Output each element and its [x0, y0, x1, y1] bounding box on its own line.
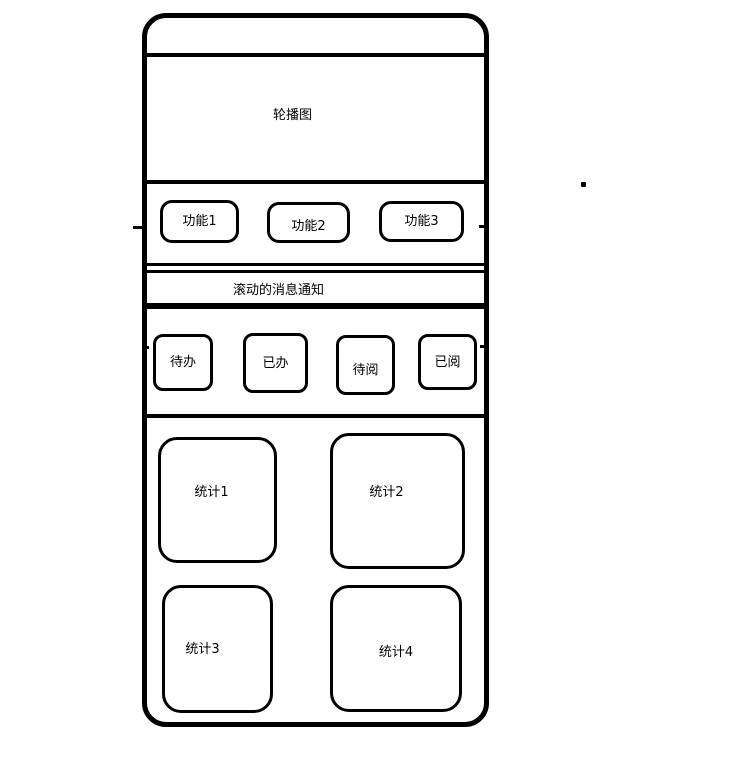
- stat-box-1[interactable]: 统计1: [158, 437, 277, 563]
- stat-box-3-label: 统计3: [185, 643, 219, 656]
- function-button-3-label: 功能3: [404, 215, 438, 228]
- notice-label: 滚动的消息通知: [233, 284, 324, 297]
- badge-todo[interactable]: 待办: [153, 334, 213, 391]
- badge-read[interactable]: 已阅: [418, 334, 477, 390]
- badge-todo-label: 待办: [170, 356, 196, 369]
- carousel-label: 轮播图: [273, 109, 312, 122]
- stat-box-4-label: 统计4: [379, 646, 413, 659]
- badge-done[interactable]: 已办: [243, 333, 308, 393]
- badge-to-read-label: 待阅: [352, 364, 378, 377]
- stat-box-2[interactable]: 统计2: [330, 433, 465, 569]
- stray-dot: [581, 182, 586, 187]
- function-button-1[interactable]: 功能1: [160, 200, 239, 243]
- function-button-3[interactable]: 功能3: [379, 201, 464, 242]
- stat-box-1-label: 统计1: [194, 486, 228, 499]
- connector-tick-right-functions: [479, 225, 486, 228]
- badge-done-label: 已办: [262, 357, 288, 370]
- stat-box-4[interactable]: 统计4: [330, 585, 462, 712]
- connector-tick-left-functions: [133, 226, 143, 229]
- function-button-2[interactable]: 功能2: [267, 202, 350, 243]
- badge-to-read[interactable]: 待阅: [336, 335, 395, 395]
- stat-box-2-label: 统计2: [369, 486, 403, 499]
- notice-strip[interactable]: 滚动的消息通知: [147, 270, 484, 306]
- connector-tick-left-badges: [145, 346, 149, 349]
- status-bar-region: [147, 18, 484, 53]
- function-button-1-label: 功能1: [182, 215, 216, 228]
- badge-read-label: 已阅: [434, 356, 460, 369]
- stat-box-3[interactable]: 统计3: [162, 585, 273, 713]
- carousel-box[interactable]: 轮播图: [147, 53, 484, 184]
- function-button-2-label: 功能2: [291, 220, 325, 233]
- connector-tick-right-badges: [480, 345, 484, 348]
